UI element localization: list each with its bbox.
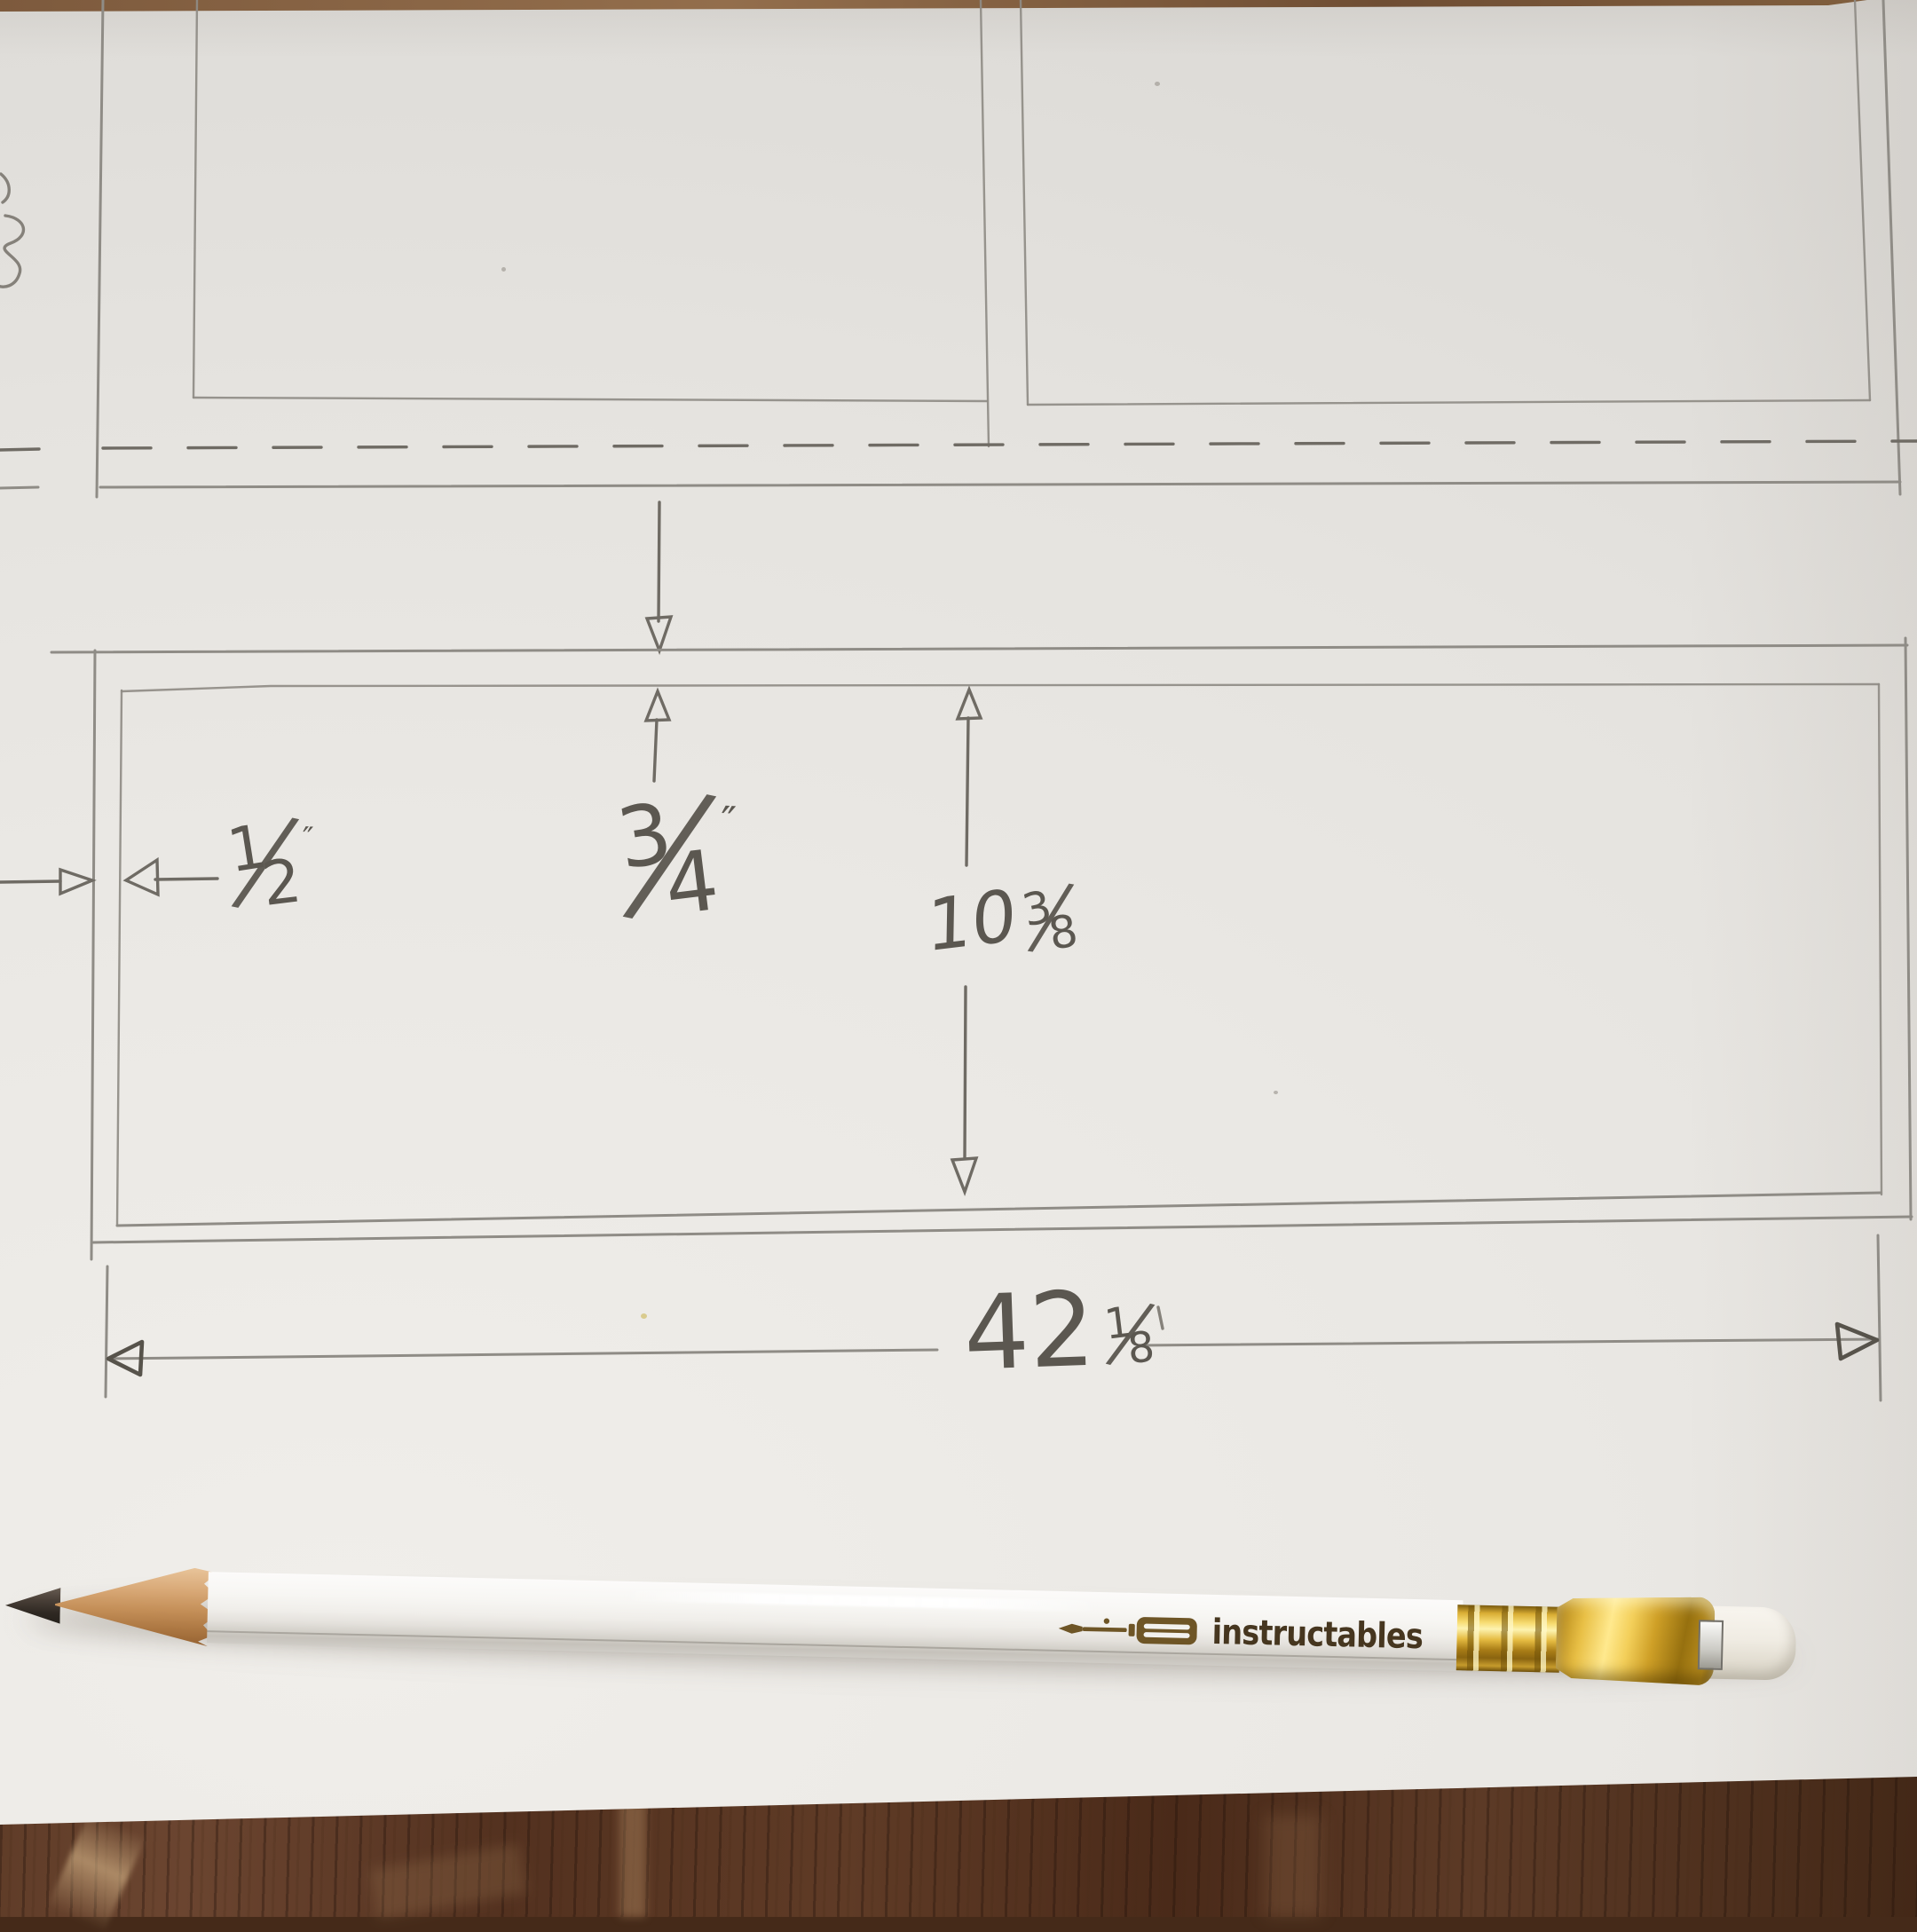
- dimension-label-top-margin: 3⁄4″: [615, 781, 743, 927]
- fraction: 1⁄8: [1104, 1304, 1155, 1368]
- pencil-brand-text: instructables: [1211, 1612, 1423, 1656]
- fraction-denominator: 4: [660, 840, 723, 928]
- fraction: 3⁄8: [1021, 884, 1080, 957]
- pencil-graphite-tip: [5, 1585, 61, 1625]
- whole-number: 10: [926, 879, 1016, 962]
- fraction: 1⁄2: [226, 819, 303, 914]
- dimension-label-side-margin: 1⁄2″: [225, 808, 318, 914]
- screwdriver-icon: [1057, 1612, 1198, 1649]
- fraction: 3⁄4: [616, 795, 722, 927]
- inch-mark: ″: [301, 824, 313, 855]
- whole-number: 42: [962, 1279, 1097, 1386]
- stray-pencil-scribble: [0, 174, 23, 287]
- pencil-ferrule-crimp: [1456, 1605, 1561, 1673]
- top-panels-outline: [0, 0, 1917, 497]
- inch-mark: ″: [719, 802, 737, 845]
- pencil-ferrule-clip: [1698, 1620, 1724, 1670]
- fold-arrow: [647, 502, 671, 651]
- three-quarter-inch-dimension-arrow: [646, 691, 669, 781]
- dimension-label-panel-height: 103⁄8: [922, 873, 1079, 968]
- dimension-label-panel-width: 421⁄8: [962, 1276, 1156, 1387]
- pencil-sharpened-wood: [54, 1565, 217, 1646]
- half-inch-dimension-arrows: [0, 860, 217, 895]
- pencil-ferrule-cup: [1555, 1594, 1715, 1686]
- fraction-denominator: 8: [1126, 1326, 1156, 1370]
- fraction-denominator: 2: [259, 851, 304, 916]
